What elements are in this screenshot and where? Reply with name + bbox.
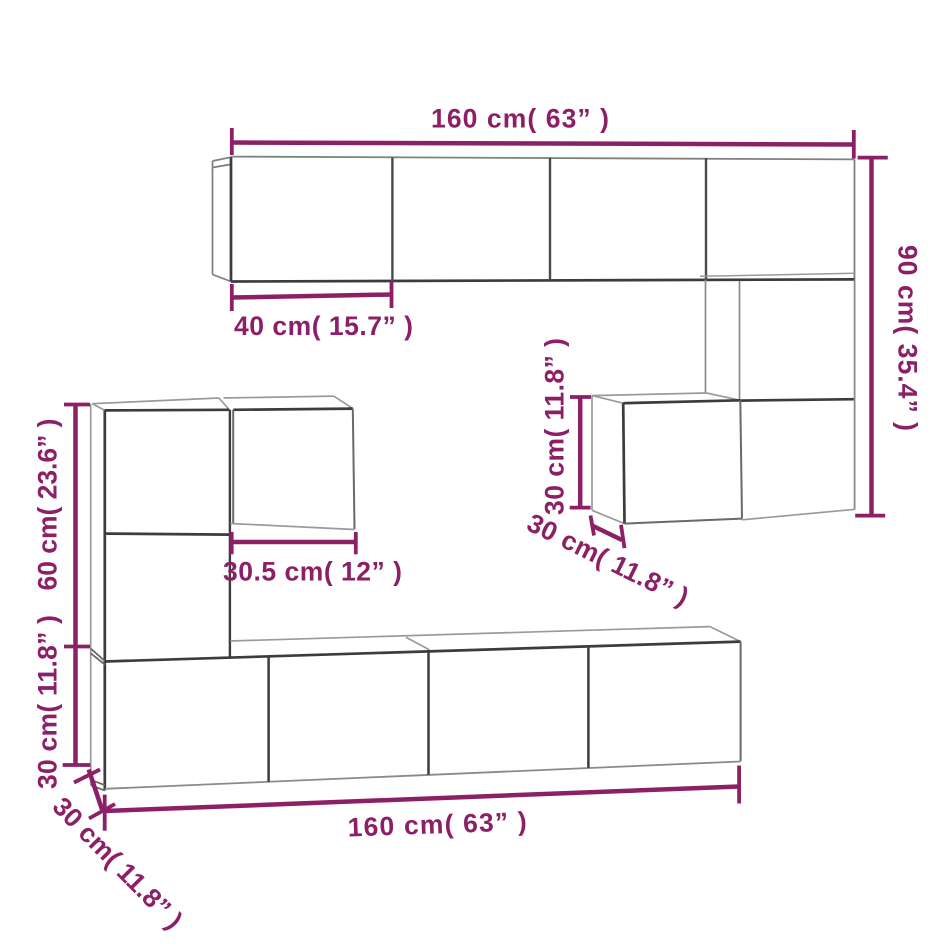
svg-text:30 cm( 11.8” ): 30 cm( 11.8” ) xyxy=(33,615,63,789)
svg-text:40 cm( 15.7” ): 40 cm( 15.7” ) xyxy=(234,311,413,341)
svg-text:30.5 cm( 12” ): 30.5 cm( 12” ) xyxy=(223,557,402,587)
svg-text:30 cm( 11.8” ): 30 cm( 11.8” ) xyxy=(522,507,693,612)
svg-text:60 cm( 23.6” ): 60 cm( 23.6” ) xyxy=(33,419,63,591)
svg-text:30 cm( 11.8” ): 30 cm( 11.8” ) xyxy=(540,338,570,515)
svg-text:90 cm( 35.4” ): 90 cm( 35.4” ) xyxy=(893,245,923,431)
svg-text:160 cm( 63” ): 160 cm( 63” ) xyxy=(431,104,609,134)
svg-text:160 cm( 63” ): 160 cm( 63” ) xyxy=(347,806,527,842)
